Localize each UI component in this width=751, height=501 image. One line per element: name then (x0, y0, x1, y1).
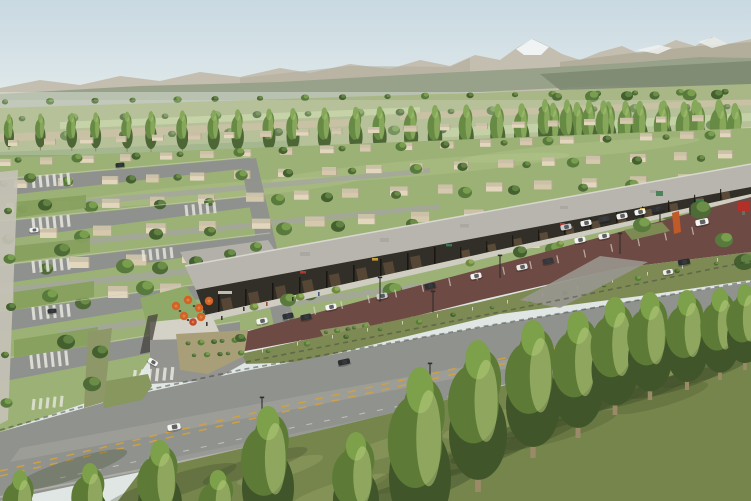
houses (70, 257, 90, 268)
houses (656, 117, 667, 120)
storefront-columns (538, 230, 539, 241)
storefront-columns (460, 247, 461, 258)
houses (40, 157, 53, 160)
person (292, 297, 294, 301)
res-trees (571, 158, 578, 164)
reflector-posts (332, 335, 333, 339)
houses (480, 140, 492, 143)
patio-umbrella (172, 302, 180, 310)
houses (640, 133, 653, 136)
median-shrubs (637, 276, 641, 279)
houses (703, 115, 704, 121)
houses (680, 132, 695, 139)
far-trees (711, 90, 723, 100)
res-trees (84, 201, 98, 212)
houses (224, 132, 235, 135)
parkway-trees (4, 352, 9, 356)
houses (379, 127, 380, 133)
res-trees (543, 137, 554, 146)
patio-umbrella (175, 305, 178, 308)
res-trees (567, 158, 579, 168)
houses (332, 128, 343, 134)
median-shrubs (714, 262, 719, 266)
poplar-row-back (95, 117, 99, 138)
palm-tree (335, 286, 340, 290)
light-pole (688, 200, 692, 202)
houses (408, 187, 409, 196)
houses (731, 130, 732, 137)
person (266, 302, 268, 306)
houses (468, 162, 469, 170)
median-shrubs (490, 306, 495, 310)
patio-table (193, 305, 196, 307)
median-shrubs (267, 350, 270, 352)
island-tree (238, 334, 244, 339)
patio-umbrella (205, 297, 213, 305)
island-shrubs (227, 352, 230, 354)
rooftop-unit (560, 206, 568, 209)
res-trees (179, 152, 183, 155)
far-trees (650, 92, 660, 100)
houses (120, 199, 121, 208)
res-trees (173, 174, 181, 181)
res-trees (394, 191, 400, 196)
houses (450, 124, 451, 130)
houses (404, 126, 418, 132)
median-shrubs (715, 262, 718, 264)
island-shrubs (213, 339, 217, 342)
res-trees (75, 154, 82, 159)
poplar-row-back (466, 111, 472, 140)
houses (534, 180, 553, 189)
houses (234, 132, 235, 138)
res-trees (122, 259, 133, 268)
far-trees (632, 91, 638, 96)
houses (152, 135, 164, 141)
far-trees (259, 96, 263, 99)
houses (514, 160, 515, 168)
res-trees (414, 164, 421, 170)
res-trees (286, 169, 292, 174)
far-trees (634, 91, 638, 94)
patio-umbrella (180, 312, 188, 320)
median-shrubs (450, 313, 456, 317)
houses (692, 115, 704, 118)
poplar-cluster-right (603, 107, 609, 137)
storefront-columns (272, 283, 274, 300)
houses (309, 191, 310, 200)
patio-umbrella (195, 304, 203, 312)
houses (438, 185, 454, 189)
res-trees (457, 163, 467, 171)
storefront-sign (446, 244, 452, 246)
houses (294, 191, 310, 195)
pavilion-tree (194, 257, 202, 264)
houses (0, 159, 12, 162)
houses (694, 132, 695, 139)
storefront-columns (486, 241, 487, 252)
houses (52, 157, 53, 164)
houses (102, 199, 121, 203)
houses (360, 145, 372, 152)
patio-umbrella (192, 321, 195, 324)
houses (342, 128, 343, 134)
median-shrubs (452, 313, 455, 316)
houses (320, 146, 335, 149)
parkway-trees (4, 208, 12, 214)
houses (476, 123, 488, 126)
houses (336, 167, 337, 175)
res-trees (341, 146, 345, 149)
houses (322, 167, 337, 171)
houses (640, 133, 653, 140)
res-trees (89, 201, 97, 208)
houses (411, 212, 430, 217)
res-trees (351, 168, 356, 172)
houses (646, 154, 647, 162)
houses (8, 140, 19, 146)
res-trees (325, 193, 332, 199)
res-trees (116, 259, 134, 273)
far-trees (466, 93, 473, 99)
houses (216, 221, 217, 231)
res-trees (705, 131, 716, 140)
houses (264, 193, 265, 202)
houses (89, 257, 90, 268)
houses (358, 189, 359, 198)
houses (720, 130, 732, 137)
houses (687, 152, 688, 160)
person (318, 292, 320, 296)
far-trees (514, 92, 518, 95)
patio-umbrella (187, 299, 190, 302)
houses (120, 154, 132, 157)
light-pole (498, 255, 502, 257)
houses (574, 137, 575, 144)
houses (120, 154, 132, 161)
houses (652, 133, 653, 140)
houses (584, 119, 596, 122)
houses (252, 219, 271, 229)
island-shrubs (192, 354, 196, 358)
houses (296, 130, 310, 133)
reflector-posts (402, 321, 403, 325)
far-trees (424, 93, 429, 97)
island-shrubs (200, 340, 204, 343)
res-trees (546, 137, 553, 142)
houses (512, 122, 526, 128)
houses (368, 127, 380, 130)
person (221, 316, 223, 320)
res-trees (271, 194, 285, 205)
houses (334, 146, 335, 153)
median-shrubs (676, 269, 679, 272)
island-shrubs (204, 352, 210, 357)
houses (525, 122, 526, 128)
houses (116, 136, 127, 142)
res-trees (129, 175, 135, 180)
houses (360, 145, 372, 148)
houses (534, 180, 553, 184)
res-trees (697, 155, 705, 162)
houses (366, 165, 383, 173)
res-trees (132, 153, 141, 160)
houses (309, 130, 310, 136)
houses (188, 134, 202, 140)
houses (271, 131, 272, 137)
palm-tree (296, 293, 305, 300)
storefront-columns (299, 277, 301, 294)
masterplan-aerial-rendering (0, 0, 751, 501)
houses (93, 226, 112, 231)
bed-shrubs (364, 324, 368, 327)
foreground-poplar (416, 390, 441, 486)
median-shrubs (306, 341, 310, 344)
far-trees (555, 93, 561, 98)
houses (190, 173, 205, 181)
median-shrubs (345, 335, 348, 338)
houses (548, 121, 559, 127)
storefront-columns (434, 247, 436, 264)
houses (251, 149, 252, 156)
entrance-tree (721, 233, 732, 242)
houses (305, 217, 326, 222)
reflector-posts (262, 349, 263, 353)
houses (498, 160, 515, 164)
median-tree (47, 290, 57, 298)
entrance-tree (696, 201, 709, 212)
houses (159, 174, 160, 182)
houses (200, 151, 215, 158)
houses (342, 189, 359, 198)
res-trees (463, 187, 471, 194)
patio-umbrella (189, 318, 197, 326)
median-shrubs (416, 319, 423, 324)
palm-tree (556, 241, 564, 247)
island-tree (235, 334, 245, 342)
storefront-columns (326, 271, 328, 288)
storefront-tree (518, 247, 526, 254)
houses (371, 145, 372, 152)
houses (454, 141, 455, 148)
far-trees (724, 89, 728, 92)
houses (520, 138, 533, 141)
houses (532, 138, 533, 145)
median-tree (83, 377, 101, 391)
storefront-columns (245, 289, 247, 306)
poplar-row-back (324, 114, 329, 140)
island-shrubs (187, 341, 190, 343)
street-light (260, 397, 264, 399)
houses (633, 118, 634, 124)
houses (199, 221, 217, 226)
houses (198, 195, 215, 199)
houses (358, 214, 376, 219)
rooftop-unit (380, 238, 389, 242)
houses (11, 159, 12, 166)
houses (252, 219, 271, 224)
patio-umbrella (198, 307, 201, 310)
houses (260, 131, 272, 137)
houses (620, 118, 634, 121)
patio-umbrella (200, 316, 203, 319)
houses (595, 119, 596, 125)
far-trees (339, 94, 346, 100)
houses (146, 174, 160, 178)
houses (453, 185, 454, 194)
patio-umbrella (184, 296, 192, 304)
houses (163, 135, 164, 141)
houses (118, 176, 119, 184)
light-pole (618, 233, 622, 235)
bed-shrubs (353, 326, 356, 328)
houses (18, 140, 19, 146)
median-tree (92, 346, 108, 359)
median-tree (89, 377, 100, 386)
poplar-row-back (213, 115, 218, 138)
storefront-sign (218, 291, 232, 294)
person (206, 322, 208, 326)
median-shrubs (378, 328, 383, 332)
car-on-street (32, 228, 36, 231)
median-shrubs (418, 320, 422, 323)
houses (332, 128, 343, 131)
median-tree (54, 244, 70, 257)
aerial-render-canvas (0, 0, 751, 501)
parkway-trees (1, 352, 9, 358)
res-trees (79, 230, 89, 238)
houses (44, 139, 56, 142)
median-tree (57, 335, 75, 349)
res-trees (522, 161, 530, 168)
houses (116, 136, 127, 139)
median-shrubs (304, 341, 311, 346)
poplar-row-back (71, 118, 75, 139)
far-trees (715, 90, 722, 96)
monument-sign (738, 202, 750, 211)
res-trees (663, 134, 670, 140)
houses (542, 158, 556, 166)
res-trees (700, 155, 705, 159)
poplar-row-back (434, 112, 440, 140)
houses (146, 255, 147, 266)
houses (93, 226, 112, 236)
res-trees (512, 185, 519, 191)
houses (40, 157, 53, 164)
houses (80, 137, 94, 140)
palm-tree (332, 286, 341, 293)
houses (440, 124, 451, 127)
far-trees (176, 96, 181, 100)
res-trees (240, 170, 247, 176)
pavilion-tree (254, 242, 261, 248)
houses (8, 140, 19, 143)
parkway-trees (8, 254, 15, 260)
houses (131, 154, 132, 161)
far-trees (683, 89, 697, 100)
light-pole (431, 291, 435, 293)
houses (429, 212, 430, 222)
island-shrubs (211, 339, 217, 344)
street-light (428, 363, 432, 365)
houses (502, 183, 503, 192)
houses (200, 151, 215, 154)
storefront-columns (720, 189, 721, 200)
houses (368, 127, 380, 133)
res-trees (176, 174, 181, 178)
far-trees (384, 94, 390, 99)
res-trees (276, 194, 284, 201)
wayfinding-sign (656, 191, 663, 196)
res-trees (72, 154, 83, 163)
houses (102, 176, 119, 180)
reflector-posts (437, 314, 438, 318)
houses (102, 199, 121, 208)
houses (382, 165, 383, 173)
houses (325, 217, 326, 227)
light-pole (658, 209, 662, 211)
median-shrubs (491, 306, 494, 308)
poplar-cluster-right (544, 106, 550, 134)
res-trees (237, 148, 244, 153)
median-tree (42, 290, 58, 303)
foreground-poplar (647, 306, 665, 364)
entrance-tree (689, 201, 711, 219)
houses (404, 126, 418, 129)
houses (586, 156, 601, 164)
houses (486, 183, 503, 192)
entrance-tree (715, 233, 733, 247)
storefront-sign (300, 271, 306, 274)
houses (412, 143, 413, 150)
median-tree (24, 173, 36, 183)
patio-umbrella (208, 300, 211, 303)
poplar-row-back (8, 119, 12, 138)
entrance-tree (639, 218, 650, 227)
car-on-street (118, 163, 122, 166)
houses (476, 123, 488, 129)
houses (152, 135, 164, 138)
houses (375, 214, 376, 224)
res-trees (331, 221, 345, 232)
palm-tree (466, 259, 475, 266)
patio-table (187, 319, 190, 321)
reflector-posts (647, 272, 648, 276)
parkway-trees (6, 303, 16, 311)
houses (214, 151, 215, 158)
parkway-trees (5, 398, 12, 404)
far-trees (621, 91, 633, 101)
houses (597, 178, 598, 187)
poplar-row-back (237, 115, 242, 139)
houses (498, 160, 515, 168)
res-trees (204, 227, 216, 237)
far-trees (687, 90, 695, 97)
houses (480, 140, 492, 147)
poplar-row-back (40, 118, 44, 138)
houses (720, 130, 732, 133)
houses (491, 140, 492, 147)
houses (55, 139, 56, 145)
res-trees (444, 141, 449, 145)
foreground-poplar (685, 303, 701, 357)
island-shrubs (221, 339, 224, 341)
rooftop-unit (300, 252, 310, 256)
houses (486, 183, 503, 187)
patio-table (179, 310, 182, 312)
poplar-row-back (497, 111, 503, 140)
houses (358, 214, 376, 224)
